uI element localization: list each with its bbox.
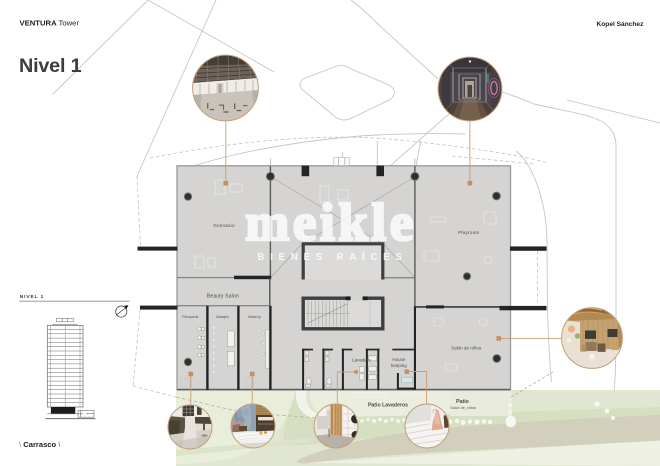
- svg-text:Lavadero: Lavadero: [352, 357, 371, 362]
- svg-text:House: House: [392, 357, 406, 362]
- svg-text:Masajes: Masajes: [216, 315, 229, 319]
- svg-text:Nivel 1: Nivel 1: [19, 55, 82, 77]
- svg-text:Playroom: Playroom: [458, 230, 479, 235]
- svg-text:Peluqueria: Peluqueria: [182, 315, 198, 319]
- svg-text:Salón de_niños: Salón de_niños: [450, 406, 476, 410]
- svg-text:meikle: meikle: [245, 194, 417, 252]
- svg-text:keeping: keeping: [391, 363, 407, 368]
- svg-text:Salón de niños: Salón de niños: [451, 346, 482, 351]
- svg-text:BIENES RAÍCES: BIENES RAÍCES: [257, 251, 407, 263]
- svg-text:Patio: Patio: [456, 399, 469, 405]
- svg-text:Patio Lavaderos: Patio Lavaderos: [368, 403, 408, 409]
- svg-text:MakeUp: MakeUp: [248, 315, 261, 319]
- svg-text:VENTURA Tower: VENTURA Tower: [20, 19, 80, 28]
- svg-text:Kopel Sánchez: Kopel Sánchez: [597, 21, 645, 28]
- svg-text:NIVEL 1: NIVEL 1: [20, 294, 44, 300]
- svg-text:Beauty Salon: Beauty Salon: [207, 293, 239, 299]
- svg-text:Gimnasio: Gimnasio: [213, 223, 235, 228]
- svg-text:\ Carrasco \: \ Carrasco \: [19, 440, 61, 449]
